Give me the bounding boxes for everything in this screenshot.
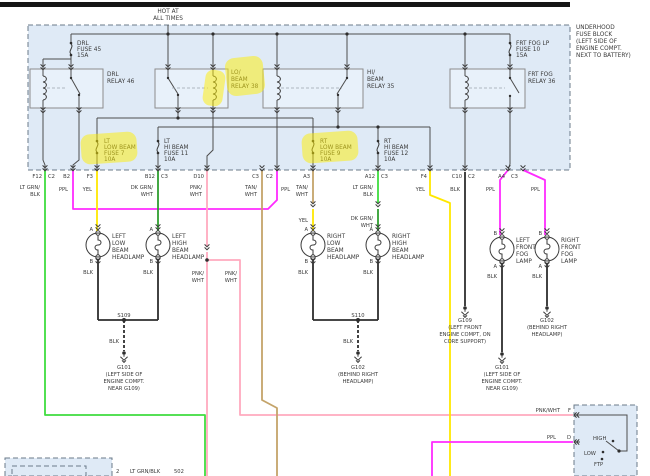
ground-g101-label: NEAR G109) [486, 386, 518, 392]
lt-hi-fuse-label: 10A [164, 157, 175, 163]
pin-a4-label: A4 [498, 174, 506, 180]
wire-label-tan-wht: WHT [296, 192, 309, 198]
wire-label-dk-grn-wht: DK GRN/ [131, 185, 154, 191]
left-front-fog-lamp-icon [490, 235, 514, 263]
ground-g109-label: CORE SUPPORT) [444, 339, 486, 345]
wire-label-yel: YEL [415, 187, 425, 193]
left-high-beam-headlamp-label: HIGH [172, 241, 187, 247]
wire-label-tan-wht: WHT [245, 192, 258, 198]
wire-label-ppl: PPL [486, 187, 495, 193]
right-low-beam-headlamp-label: HEADLAMP [327, 255, 360, 261]
right-low-beam-headlamp-icon [301, 231, 325, 259]
terminal-b-label: B [304, 259, 308, 265]
terminal-a-label: A [538, 264, 542, 270]
ground-g109-label: G109 [458, 318, 472, 324]
wire-label-ppl: PPL [281, 187, 290, 193]
pin-c3-label: C3 [252, 174, 259, 180]
terminal-a-label: A [149, 227, 153, 233]
left-front-fog-lamp-label: LEFT [516, 238, 530, 244]
pin-a12-label: A12 [365, 174, 375, 180]
conn-c3-label: C3 [161, 174, 168, 180]
frt-fog-fuse-label: 15A [516, 53, 527, 59]
splice-s109-label: S109 [117, 313, 130, 319]
right-front-fog-lamp-label: LAMP [561, 259, 577, 265]
wire-label-lt-grn-blk: LT GRN/ [353, 185, 373, 191]
fuse-block-label: (LEFT SIDE OF [576, 39, 617, 45]
conn-c2-label: C2 [468, 174, 475, 180]
right-front-fog-lamp-icon [535, 235, 559, 263]
wire-label-lt-grn-blk: BLK [30, 192, 40, 198]
wire-tan-wht-c3 [262, 170, 277, 476]
left-low-beam-headlamp-label: BEAM [112, 248, 129, 254]
wire-label-pnk-wht: PNK/WHT [536, 408, 561, 414]
ground-g102b-icon [543, 306, 550, 317]
terminal-b-label: B [149, 259, 153, 265]
wire-label-blk: BLK [298, 270, 308, 276]
ground-g102-label: (BEHIND RIGHT [527, 325, 568, 331]
wire-label-pnk-wht: PNK/ [190, 185, 202, 191]
fuse-block-label: UNDERHOOD [576, 25, 615, 31]
wire-label-ppl: PPL [547, 435, 556, 441]
right-high-beam-headlamp-icon [366, 231, 390, 259]
wire-label-tan-wht: TAN/ [244, 185, 257, 191]
frt-fog-relay-label: RELAY 36 [528, 79, 556, 85]
drl-relay-label: DRL [107, 72, 119, 78]
splice-s110-label: S110 [351, 313, 364, 319]
pin-f12-label: F12 [32, 174, 42, 180]
terminal-a-label: A [369, 227, 373, 233]
pin-b2-label: B2 [63, 174, 70, 180]
right-front-fog-lamp-label: RIGHT [561, 238, 580, 244]
left-high-beam-headlamp-label: LEFT [172, 234, 186, 240]
dimmer-ftp-label: FTP [594, 462, 603, 468]
conn-c3-label: C3 [511, 174, 518, 180]
bottom-left-module-inner-box [12, 466, 86, 476]
left-front-fog-lamp-label: LAMP [516, 259, 532, 265]
fuse-block-label: ENGINE COMPT. [576, 46, 622, 52]
ground-g102-icon [354, 351, 361, 362]
drl-relay-box [30, 69, 103, 108]
ground-g102-label: HEADLAMP) [343, 379, 374, 385]
wire-label-ppl: PPL [59, 187, 68, 193]
left-low-beam-headlamp-label: LEFT [112, 234, 126, 240]
conn-c2-label: C2 [266, 174, 273, 180]
ground-g101-icon [120, 351, 127, 362]
ground-g101-label: ENGINE COMPT. [103, 379, 144, 385]
left-high-beam-headlamp-label: HEADLAMP [172, 255, 205, 261]
wire-label-pnk-wht: PNK/ [192, 271, 204, 277]
terminal-b-label: B [369, 259, 373, 265]
wire-label-lt-grn-blk: LT GRN/ [20, 185, 40, 191]
drl-relay-label: RELAY 46 [107, 79, 135, 85]
hot-at-label: ALL TIMES [153, 16, 183, 22]
ground-g102-label: (BEHIND RIGHT [338, 372, 379, 378]
wire-label-blk: BLK [109, 339, 119, 345]
right-high-beam-headlamp-label: RIGHT [392, 234, 411, 240]
wire-label-pnk-wht: PNK/ [225, 271, 237, 277]
wire-label-dk-grn-wht: DK GRN/ [351, 216, 374, 222]
left-low-beam-headlamp-label: LOW [112, 241, 126, 247]
hi-beam-relay-label: BEAM [367, 77, 384, 83]
wire-yel-f4 [430, 170, 450, 476]
ground-g101-label: G101 [117, 365, 131, 371]
left-front-fog-lamp-label: FRONT [516, 245, 536, 251]
ground-g102-label: HEADLAMP) [532, 332, 563, 338]
bottom-circuit-label: 502 [174, 469, 184, 475]
right-low-beam-headlamp-label: RIGHT [327, 234, 346, 240]
ground-g102-label: G102 [540, 318, 554, 324]
left-high-beam-headlamp-label: BEAM [172, 248, 189, 254]
wire-label-blk: BLK [532, 274, 542, 280]
pin-f3-label: F3 [87, 174, 93, 180]
page-top-rule [0, 2, 570, 7]
conn-c2-label: C2 [48, 174, 55, 180]
right-high-beam-headlamp-label: HIGH [392, 241, 407, 247]
wire-label-blk: BLK [343, 339, 353, 345]
hi-beam-relay-label: HI/ [367, 70, 375, 76]
wire-label-dk-grn-wht: WHT [141, 192, 154, 198]
right-front-fog-lamp-label: FOG [561, 252, 574, 258]
wire-label-blk: BLK [450, 187, 460, 193]
wire-label-pnk-wht: WHT [190, 192, 203, 198]
pin-b12-label: B12 [145, 174, 155, 180]
wire-label-yel: YEL [298, 218, 308, 224]
wire-label-ppl: PPL [531, 187, 540, 193]
pin-c10-label: C10 [452, 174, 462, 180]
ground-g101-label: (LEFT SIDE OF [484, 372, 521, 378]
wiring-diagram-page: HOT AT ALL TIMES UNDERHOOD FUSE BLOCK (L… [0, 0, 650, 476]
conn-c3-label: C3 [381, 174, 388, 180]
right-low-beam-headlamp-label: BEAM [327, 248, 344, 254]
frt-fog-relay-label: FRT FOG [528, 72, 553, 78]
wire-label-tan-wht: TAN/ [295, 185, 308, 191]
ground-g101-label: (LEFT SIDE OF [106, 372, 143, 378]
frt-fog-relay-box [450, 69, 525, 108]
bottom-pin-label: 2 [116, 469, 119, 475]
hot-at-label: HOT AT [157, 9, 179, 15]
pin-f4-label: F4 [421, 174, 428, 180]
headlamp-fog-wiring-diagram: HOT AT ALL TIMES UNDERHOOD FUSE BLOCK (L… [0, 0, 650, 476]
left-low-beam-headlamp-icon [86, 231, 110, 259]
drl-fuse-label: 15A [77, 53, 88, 59]
wire-label-blk: BLK [363, 270, 373, 276]
terminal-b-label: B [493, 231, 497, 237]
terminal-b-label: B [538, 231, 542, 237]
ground-g109-icon [461, 306, 468, 317]
terminal-a-label: A [89, 227, 93, 233]
ground-g109-label: ENGINE COMPT, ON [439, 332, 490, 338]
ground-g109-label: (LEFT FRONT [448, 325, 482, 331]
dimmer-pin-f-label: F [568, 408, 571, 414]
dimmer-low-label: LOW [584, 451, 596, 457]
right-front-fog-lamp-label: FRONT [561, 245, 581, 251]
hi-beam-relay-label: RELAY 35 [367, 84, 395, 90]
dimmer-pin-d-label: D [567, 435, 571, 441]
wire-label-lt-grn-blk: BLK [363, 192, 373, 198]
pin-a3-label: A3 [303, 174, 310, 180]
terminal-a-label: A [304, 227, 308, 233]
dimmer-high-label: HIGH [593, 436, 606, 442]
left-front-fog-lamp-label: FOG [516, 252, 529, 258]
right-high-beam-headlamp-label: BEAM [392, 248, 409, 254]
terminal-b-label: B [89, 259, 93, 265]
terminal-a-label: A [493, 264, 497, 270]
wire-ppl-right-fog [523, 170, 545, 235]
wire-label-pnk-wht: WHT [225, 278, 238, 284]
wire-label-blk: BLK [487, 274, 497, 280]
right-high-beam-headlamp-label: HEADLAMP [392, 255, 425, 261]
pin-d10-label: D10 [193, 174, 204, 180]
ground-g101-label: ENGINE COMPT. [481, 379, 522, 385]
ground-g102-label: G102 [351, 365, 365, 371]
left-high-beam-headlamp-icon [146, 231, 170, 259]
bottom-wire-label: LT GRN/BLK [130, 469, 161, 475]
left-low-beam-headlamp-label: HEADLAMP [112, 255, 145, 261]
wire-ppl-dimmer-feed [432, 442, 573, 476]
ground-g101b-icon [498, 352, 505, 363]
ground-g101-label: NEAR G109) [108, 386, 140, 392]
wire-lt-grn-blk-f12 [45, 170, 205, 476]
right-low-beam-headlamp-label: LOW [327, 241, 341, 247]
fuse-block-label: FUSE BLOCK [576, 32, 612, 38]
wire-label-yel: YEL [82, 187, 92, 193]
fuse-block-label: NEXT TO BATTERY) [576, 53, 631, 59]
wire-label-blk: BLK [143, 270, 153, 276]
lamp-terminal-pin-icons [96, 224, 550, 267]
ground-g101-label: G101 [495, 365, 509, 371]
wire-label-blk: BLK [83, 270, 93, 276]
wire-label-pnk-wht: WHT [192, 278, 205, 284]
rt-hi-fuse-label: 10A [384, 157, 395, 163]
